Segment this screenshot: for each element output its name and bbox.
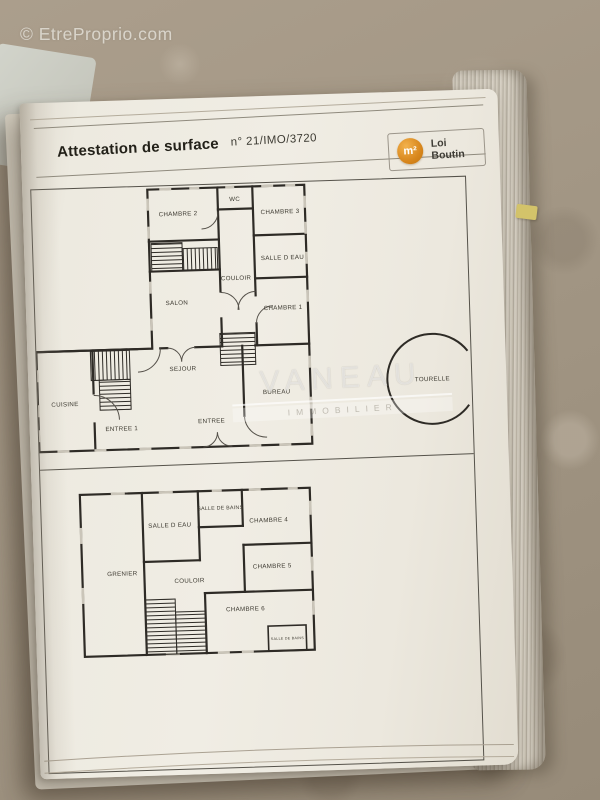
upper-windows	[31, 185, 312, 452]
room-label-salle-de-bains-small: SALLE DE BAINS	[271, 636, 305, 641]
room-label-bureau: BUREAU	[263, 388, 291, 396]
upper-stairs	[87, 240, 257, 410]
room-label-tourelle: TOURELLE	[415, 375, 450, 383]
upper-door-arcs	[88, 210, 277, 451]
room-label-chambre-1: CHAMBRE 1	[264, 304, 303, 312]
room-label-salon: SALON	[166, 299, 189, 307]
room-label-entree: ENTREE	[198, 417, 225, 425]
lower-stairs	[145, 598, 207, 655]
room-label-wc: WC	[229, 196, 240, 203]
document-page: Attestation de surface n° 21/IMO/3720 m²…	[20, 89, 519, 780]
upper-walls	[31, 185, 312, 452]
room-label-salle-d-eau-2: SALLE D EAU	[148, 521, 191, 529]
page-title: Attestation de surface	[57, 135, 220, 160]
room-label-salle-d-eau: SALLE D EAU	[261, 254, 304, 262]
room-label-chambre-4: CHAMBRE 4	[249, 516, 288, 524]
floor-plan-frame: CHAMBRE 2 WC CHAMBRE 3 SALLE D EAU COULO…	[30, 176, 484, 774]
room-label-couloir-2: COULOIR	[174, 577, 205, 585]
room-label-cuisine: CUISINE	[51, 401, 78, 409]
room-label-couloir: COULOIR	[221, 274, 252, 282]
room-label-chambre-2: CHAMBRE 2	[159, 210, 198, 218]
loi-boutin-label: Loi Boutin	[430, 136, 465, 162]
site-watermark: © EtreProprio.com	[20, 24, 173, 45]
room-label-chambre-3: CHAMBRE 3	[261, 208, 300, 216]
room-label-entree-1: ENTREE 1	[105, 425, 138, 433]
document-reference: n° 21/IMO/3720	[230, 132, 317, 148]
loi-boutin-badge: m² Loi Boutin	[387, 128, 486, 172]
m2-logo-icon: m²	[396, 137, 423, 164]
photo-scene: © EtreProprio.com Attestation de surface…	[0, 0, 600, 800]
lower-floor-plan: GRENIER SALLE D EAU SALLE DE BAINS CHAMB…	[40, 456, 483, 773]
room-label-chambre-6: CHAMBRE 6	[226, 605, 265, 613]
room-label-chambre-5: CHAMBRE 5	[253, 562, 292, 570]
room-label-grenier: GRENIER	[107, 570, 138, 578]
sticky-tab	[515, 204, 538, 220]
room-label-salle-de-bains: SALLE DE BAINS	[197, 505, 243, 512]
room-label-sejour: SEJOUR	[169, 365, 196, 373]
upper-floor-plan: CHAMBRE 2 WC CHAMBRE 3 SALLE D EAU COULO…	[31, 177, 474, 468]
